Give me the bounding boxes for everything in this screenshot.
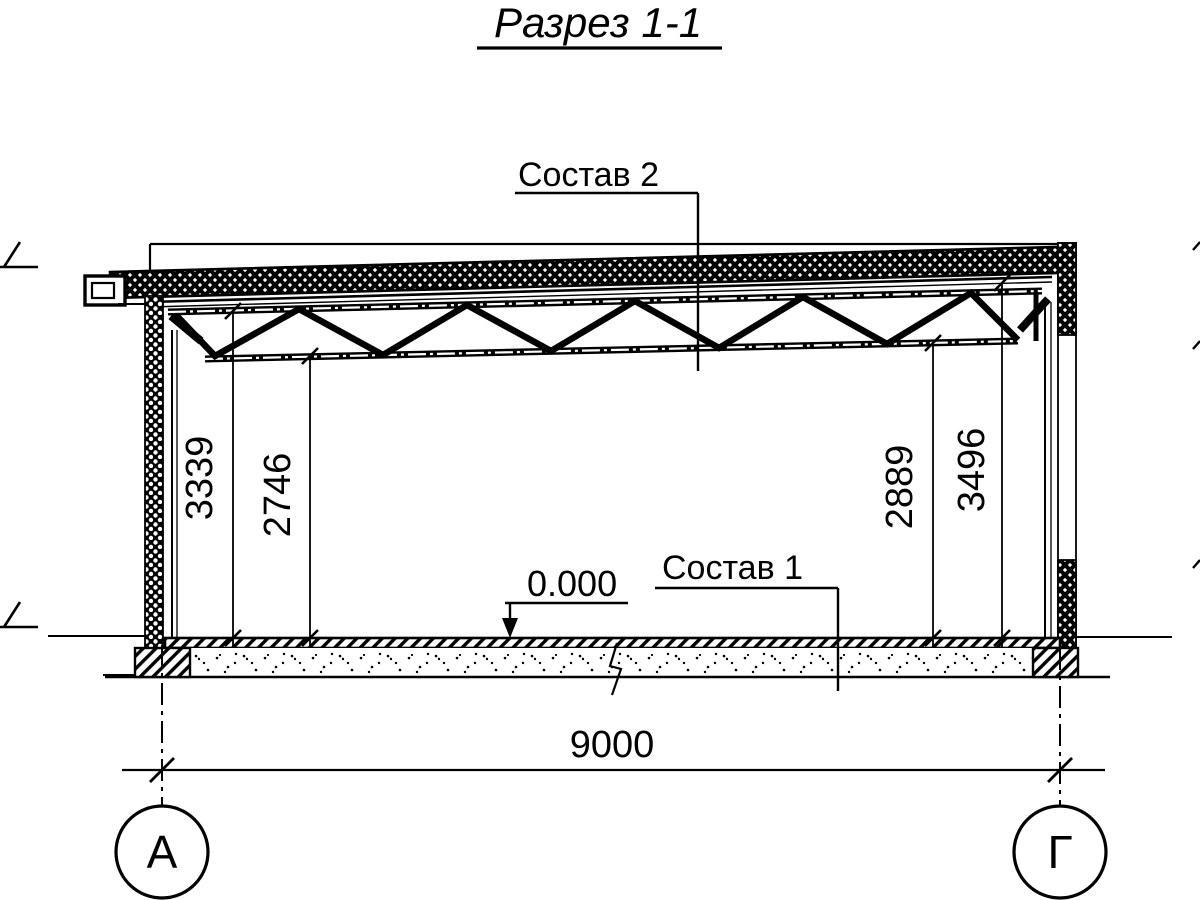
axis-label-left: А	[147, 826, 178, 878]
dimension-right-outer: 3496	[951, 428, 993, 513]
dimension-right-inner: 2889	[879, 445, 921, 530]
span-dimension-value: 9000	[570, 724, 655, 766]
zero-level-label: 0.000	[527, 563, 617, 604]
left-wall	[145, 296, 177, 648]
axis-bubble-left: А	[116, 806, 208, 898]
floor-composition-label: Состав 1	[662, 549, 803, 587]
section-1-1-drawing: Разрез 1-1	[0, 0, 1200, 900]
right-foundation-block	[1033, 648, 1078, 677]
dimension-left-outer: 3339	[179, 436, 221, 521]
drawing-title: Разрез 1-1	[494, 0, 702, 46]
axis-label-right: Г	[1048, 826, 1073, 878]
roof-composition-label: Состав 2	[518, 156, 659, 194]
section-drawing-sheet: Разрез 1-1	[0, 0, 1200, 900]
axis-bubble-right: Г	[1014, 806, 1106, 898]
title-block: Разрез 1-1	[477, 0, 722, 48]
right-wall-base	[1058, 560, 1076, 648]
right-parapet	[1058, 243, 1076, 335]
dimension-left-inner: 2746	[257, 453, 299, 538]
